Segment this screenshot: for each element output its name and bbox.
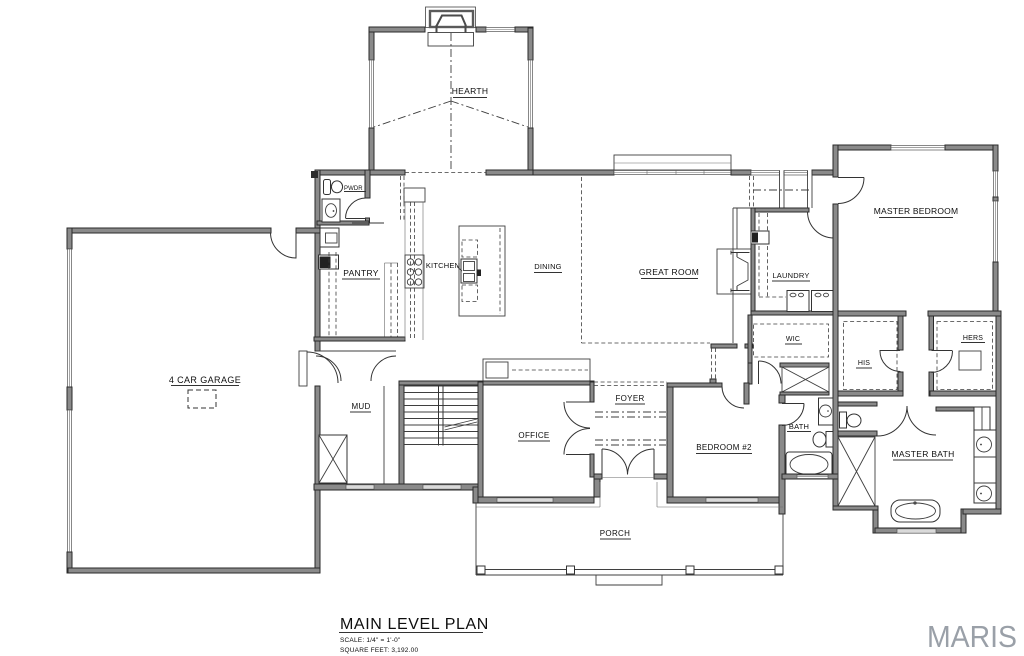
svg-text:PANTRY: PANTRY xyxy=(343,268,379,278)
svg-text:KITCHEN: KITCHEN xyxy=(426,261,460,270)
svg-text:OFFICE: OFFICE xyxy=(518,431,549,440)
svg-text:4 CAR GARAGE: 4 CAR GARAGE xyxy=(169,375,241,385)
svg-text:DINING: DINING xyxy=(534,262,561,271)
svg-text:WIC: WIC xyxy=(786,336,800,343)
svg-text:SCALE: 1/4" = 1'-0": SCALE: 1/4" = 1'-0" xyxy=(340,637,401,644)
svg-text:HEARTH: HEARTH xyxy=(452,86,489,96)
svg-text:PORCH: PORCH xyxy=(600,529,630,538)
svg-text:MUD: MUD xyxy=(351,402,370,411)
svg-text:GREAT ROOM: GREAT ROOM xyxy=(639,267,699,277)
svg-text:MASTER BEDROOM: MASTER BEDROOM xyxy=(874,206,959,216)
svg-text:FOYER: FOYER xyxy=(615,394,644,403)
svg-text:MARIS: MARIS xyxy=(927,620,1017,654)
svg-text:BEDROOM #2: BEDROOM #2 xyxy=(696,443,752,452)
svg-text:SQUARE FEET: 3,192.00: SQUARE FEET: 3,192.00 xyxy=(340,647,418,654)
svg-text:MAIN LEVEL PLAN: MAIN LEVEL PLAN xyxy=(340,616,489,633)
svg-text:BATH: BATH xyxy=(789,422,809,431)
svg-text:HERS: HERS xyxy=(963,335,983,342)
svg-text:HIS: HIS xyxy=(858,360,870,367)
svg-text:LAUNDRY: LAUNDRY xyxy=(772,271,809,280)
svg-text:MASTER BATH: MASTER BATH xyxy=(891,449,954,459)
